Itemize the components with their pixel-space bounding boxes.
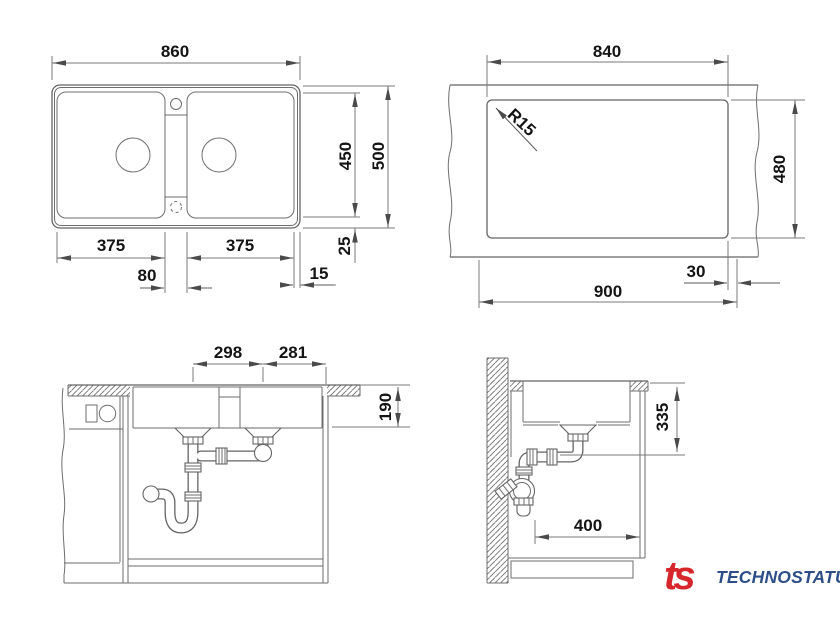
- drawing-canvas: 860 450 500 25 375: [0, 0, 840, 625]
- drain-flange-right: [245, 428, 281, 444]
- dim-label-480: 480: [770, 155, 789, 183]
- sink-technical-drawing: 860 450 500 25 375: [0, 0, 840, 625]
- dim-drain-wall-offset: 400: [535, 516, 640, 537]
- dim-label-80: 80: [138, 266, 157, 285]
- drain-elbow-ball: [255, 445, 272, 462]
- dim-label-450: 450: [336, 142, 355, 170]
- dim-label-900: 900: [594, 282, 622, 301]
- dim-cabinet-width: 900: [479, 282, 737, 302]
- dim-label-860: 860: [161, 42, 189, 61]
- pipe-coupling: [185, 492, 201, 501]
- bowl-left: [57, 92, 165, 218]
- plinth: [511, 561, 633, 578]
- drain-flange-left: [175, 428, 211, 444]
- dim-label-281: 281: [279, 343, 307, 362]
- dim-label-190: 190: [376, 393, 395, 421]
- pipe-coupling: [547, 449, 557, 465]
- dim-label-335: 335: [653, 403, 672, 431]
- dim-label-840: 840: [593, 42, 621, 61]
- tap-hole-optional: [171, 202, 182, 213]
- dim-label-r15: R15: [504, 105, 540, 140]
- countertop-hatch-left: [68, 386, 130, 397]
- break-line-right: [755, 85, 759, 257]
- wall-break-line: [62, 388, 65, 583]
- dim-edge-gap: 15: [281, 264, 336, 285]
- pipe-coupling: [527, 449, 537, 465]
- brand-logo: ts TECHNOSTATUS: [664, 554, 840, 598]
- socket-symbol: [86, 405, 97, 422]
- countertop-hatch-right: [327, 386, 360, 397]
- dim-label-375-right: 375: [226, 236, 254, 255]
- dim-inner-depth: 450: [336, 93, 355, 217]
- tap-hole: [171, 99, 182, 110]
- drain-left: [116, 138, 150, 172]
- dim-label-30: 30: [687, 262, 706, 281]
- dim-edge-offset: 30: [684, 262, 780, 283]
- trap-inlet-loop: [143, 486, 159, 502]
- countertop-hatch-front: [630, 382, 648, 392]
- dim-rim-gap: 25: [335, 228, 355, 263]
- pipe-coupling: [216, 448, 227, 464]
- socket-round-symbol: [99, 405, 115, 421]
- logo-mark: ts: [664, 554, 694, 598]
- side-section-view: 335 400: [487, 358, 685, 583]
- countertop-hatch-back: [510, 382, 523, 392]
- pipe-coupling: [516, 467, 532, 475]
- dim-drain-height: 335: [653, 387, 677, 452]
- dim-label-400: 400: [574, 516, 602, 535]
- logo-wordmark: TECHNOSTATUS: [716, 567, 840, 587]
- pipe-coupling: [514, 498, 533, 505]
- dim-cutout-width: 840: [487, 42, 728, 62]
- drain-flange-side: [560, 425, 596, 441]
- dim-cutout-depth: 480: [770, 100, 795, 238]
- plan-view: 860 450 500 25 375: [52, 42, 395, 293]
- wall-hatch: [487, 358, 508, 583]
- dim-divider-width: 80: [138, 266, 212, 288]
- dim-bowl-left-width: 375: [57, 236, 165, 258]
- dim-label-500: 500: [369, 142, 388, 170]
- break-line-left: [448, 85, 452, 257]
- dim-corner-radius: R15: [496, 105, 540, 151]
- dim-label-25: 25: [335, 237, 354, 256]
- dim-bowl-right-width: 375: [187, 236, 294, 258]
- drain-plumbing-front: [143, 428, 281, 528]
- dim-label-15: 15: [310, 264, 329, 283]
- front-section-view: 298 281 190: [62, 343, 410, 583]
- drain-plumbing-side: [495, 425, 596, 516]
- drain-right: [202, 138, 236, 172]
- dim-bowl-depth: 190: [376, 387, 398, 427]
- bowl-right: [187, 92, 294, 218]
- dim-label-375-left: 375: [97, 236, 125, 255]
- cutout-view: 840 R15 480 900 30: [448, 42, 805, 308]
- dim-overall-width: 860: [52, 42, 300, 63]
- dim-drain-to-edge: 281: [264, 343, 325, 364]
- dim-label-298: 298: [214, 343, 242, 362]
- pipe-coupling: [185, 463, 201, 472]
- dim-overall-depth: 500: [369, 86, 388, 228]
